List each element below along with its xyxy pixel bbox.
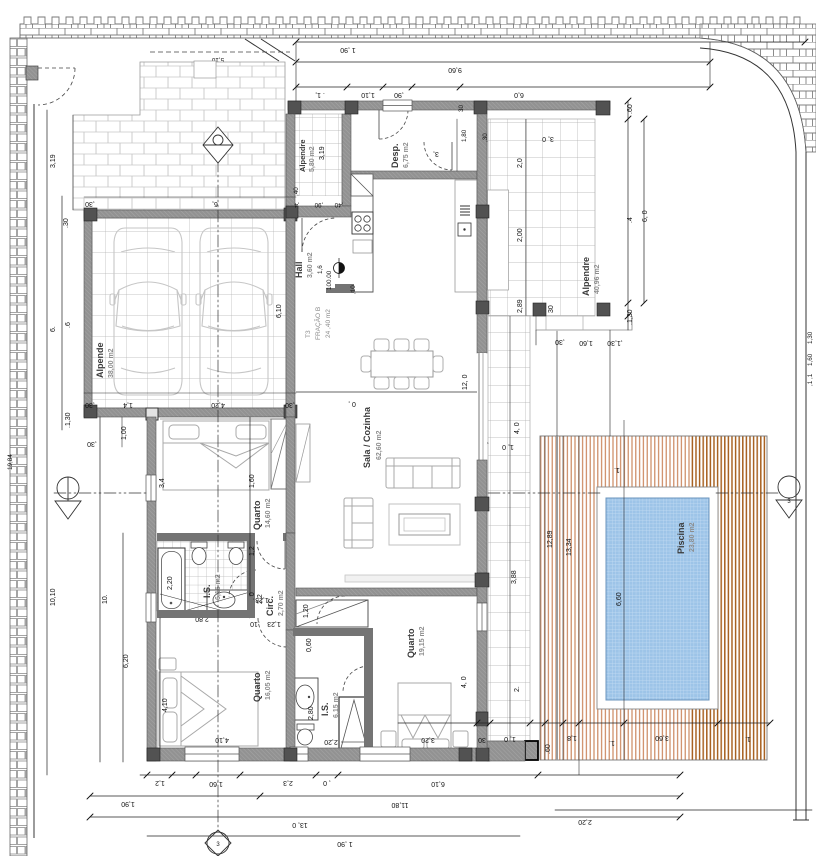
svg-text:,40: ,40 (334, 201, 343, 208)
svg-text:14,60 m2: 14,60 m2 (265, 498, 272, 528)
svg-text:13,34: 13,34 (566, 538, 573, 556)
svg-text:1,23: 1,23 (267, 620, 281, 627)
svg-text:4,10: 4,10 (162, 698, 169, 712)
svg-text:2.: 2. (514, 686, 521, 692)
svg-text:2,20: 2,20 (578, 818, 592, 825)
svg-text:9,60: 9,60 (448, 66, 462, 73)
svg-text:6,0: 6,0 (514, 91, 524, 98)
svg-text:12, 0: 12, 0 (462, 374, 469, 390)
svg-text:1,60: 1,60 (209, 780, 223, 787)
svg-text:Quarto: Quarto (252, 672, 262, 702)
svg-text:1,2: 1,2 (249, 546, 256, 556)
svg-text:6,10: 6,10 (431, 780, 445, 787)
svg-text:62,60 m2: 62,60 m2 (376, 430, 383, 460)
svg-text:1.: 1. (609, 739, 615, 746)
svg-text:0,60: 0,60 (306, 638, 313, 652)
svg-text:Alpendre: Alpendre (298, 139, 307, 172)
svg-text:Piscina: Piscina (676, 521, 686, 554)
svg-text:30: 30 (548, 305, 555, 313)
svg-text:1,90: 1,90 (121, 800, 135, 807)
svg-text:4, 0: 4, 0 (514, 422, 521, 434)
svg-text:,10: ,10 (350, 285, 357, 294)
svg-text:1,80: 1,80 (461, 129, 468, 142)
svg-text:2,00: 2,00 (517, 228, 524, 242)
svg-text:1,20: 1,20 (303, 604, 310, 618)
svg-text:2,3: 2,3 (283, 779, 293, 786)
svg-text:6,15 m2: 6,15 m2 (215, 574, 222, 600)
svg-text:1,6: 1,6 (317, 265, 324, 274)
svg-text:I.S.: I.S. (320, 702, 330, 716)
svg-text:6,60: 6,60 (616, 592, 623, 606)
svg-text:.4: .4 (627, 217, 634, 223)
svg-text:Alpende: Alpende (95, 342, 105, 378)
svg-text:.60: .60 (627, 104, 634, 114)
svg-text:1 ,90: 1 ,90 (337, 840, 353, 847)
svg-text:Sala / Cozinha: Sala / Cozinha (362, 406, 372, 468)
svg-text:1.: 1. (614, 466, 620, 473)
svg-text:. 0: . 0 (249, 592, 256, 600)
svg-text:1,23: 1,23 (255, 596, 269, 603)
svg-text:Quarto: Quarto (406, 628, 416, 658)
svg-text:16,05 m2: 16,05 m2 (265, 670, 272, 700)
svg-text:12,89: 12,89 (547, 530, 554, 548)
svg-text:3,4: 3,4 (159, 478, 166, 488)
svg-text:.6: .6 (65, 322, 72, 328)
svg-text:FRAÇÃO B: FRAÇÃO B (313, 307, 322, 340)
svg-text:.30: .30 (63, 218, 70, 228)
svg-text:10,10: 10,10 (50, 588, 57, 606)
svg-text:Quarto: Quarto (252, 500, 262, 530)
svg-text:0 ,: 0 , (348, 400, 356, 407)
svg-text:, 0: , 0 (323, 779, 331, 786)
svg-text:1,2: 1,2 (155, 779, 165, 786)
svg-text:19,84: 19,84 (7, 454, 14, 470)
svg-text:3,88: 3,88 (511, 570, 518, 584)
svg-text:,30: ,30 (555, 338, 565, 345)
svg-text:1,8: 1,8 (567, 734, 577, 741)
svg-text:3,60: 3,60 (655, 734, 669, 741)
svg-text:6,10: 6,10 (276, 304, 283, 318)
svg-text:6,75 m2: 6,75 m2 (403, 142, 410, 168)
svg-text:3,19: 3,19 (319, 146, 326, 160)
svg-text:30: 30 (478, 736, 486, 743)
svg-text:1,60: 1,60 (579, 339, 593, 346)
svg-text:3,: 3, (433, 150, 439, 157)
svg-text:1,60: 1,60 (807, 353, 814, 366)
svg-text:2,20: 2,20 (167, 576, 174, 590)
svg-text:3, 0: 3, 0 (542, 135, 554, 142)
svg-text:19,15 m2: 19,15 m2 (419, 626, 426, 656)
svg-text:,90: ,90 (314, 201, 323, 208)
svg-text:T3: T3 (305, 330, 312, 338)
svg-text:,30: ,30 (285, 401, 295, 408)
svg-text:1,10: 1,10 (361, 91, 375, 98)
svg-text:6,15 m2: 6,15 m2 (333, 692, 340, 718)
svg-text:3,19: 3,19 (50, 154, 57, 168)
svg-text:13, 0: 13, 0 (292, 821, 308, 828)
svg-text:Desp.: Desp. (390, 143, 400, 168)
svg-text:Hall: Hall (294, 261, 304, 278)
svg-text:I.S.: I.S. (202, 584, 212, 598)
svg-text:6, 0: 6, 0 (642, 210, 649, 222)
svg-text:2,20: 2,20 (324, 738, 338, 745)
svg-text:6,: 6, (212, 200, 218, 207)
svg-text:10.: 10. (102, 594, 109, 604)
svg-text:2,0: 2,0 (517, 158, 524, 168)
svg-text:,30: ,30 (85, 401, 95, 408)
svg-text:1,4: 1,4 (123, 401, 133, 408)
svg-text:1, 0: 1, 0 (504, 735, 516, 742)
svg-text:1,30: 1,30 (807, 331, 814, 344)
svg-text:6.: 6. (50, 326, 57, 332)
svg-text:30: 30 (458, 104, 465, 112)
svg-text:Alpendre: Alpendre (581, 257, 591, 296)
svg-text:,30: ,30 (482, 133, 489, 142)
svg-text:3,20: 3,20 (421, 736, 435, 743)
svg-text:,30: ,30 (85, 200, 95, 207)
svg-text:.60: .60 (545, 744, 552, 754)
svg-text:1, 0: 1, 0 (502, 443, 514, 450)
svg-text:6,20: 6,20 (123, 654, 130, 668)
svg-text:2,70 m2: 2,70 m2 (278, 590, 285, 616)
svg-text:4, 0: 4, 0 (461, 676, 468, 688)
svg-text:2,80: 2,80 (308, 706, 315, 720)
svg-text:,1 ,1: ,1 ,1 (807, 373, 814, 386)
svg-text:. 1,: . 1, (315, 91, 325, 98)
svg-text:,90: ,90 (394, 91, 404, 98)
svg-text:38,00 m2: 38,00 m2 (108, 348, 115, 378)
svg-text:1.: 1. (745, 735, 751, 742)
svg-text:.1,30: .1,30 (65, 412, 72, 428)
svg-text:11,80: 11,80 (391, 801, 408, 808)
svg-text:1 ,90: 1 ,90 (340, 46, 356, 53)
svg-text:40,96 m2: 40,96 m2 (594, 264, 601, 294)
svg-text:.1,30: .1,30 (627, 309, 634, 325)
svg-text:2,89: 2,89 (517, 299, 524, 313)
svg-text:,40: ,40 (293, 187, 300, 196)
svg-text:1,60: 1,60 (249, 474, 256, 488)
svg-text:,1,30: ,1,30 (607, 339, 623, 346)
svg-text:,4: ,4 (294, 201, 300, 208)
svg-text:,10: ,10 (250, 620, 260, 627)
svg-text:,30: ,30 (87, 440, 97, 447)
svg-text:3,60 m2: 3,60 m2 (307, 252, 314, 278)
svg-text:24 ,40 m2: 24 ,40 m2 (325, 309, 332, 338)
svg-text:23,80 m2: 23,80 m2 (689, 522, 696, 552)
svg-text:5,80 m2: 5,80 m2 (309, 146, 316, 172)
svg-text:100.00: 100.00 (326, 270, 333, 290)
svg-text:4,10: 4,10 (215, 736, 229, 743)
